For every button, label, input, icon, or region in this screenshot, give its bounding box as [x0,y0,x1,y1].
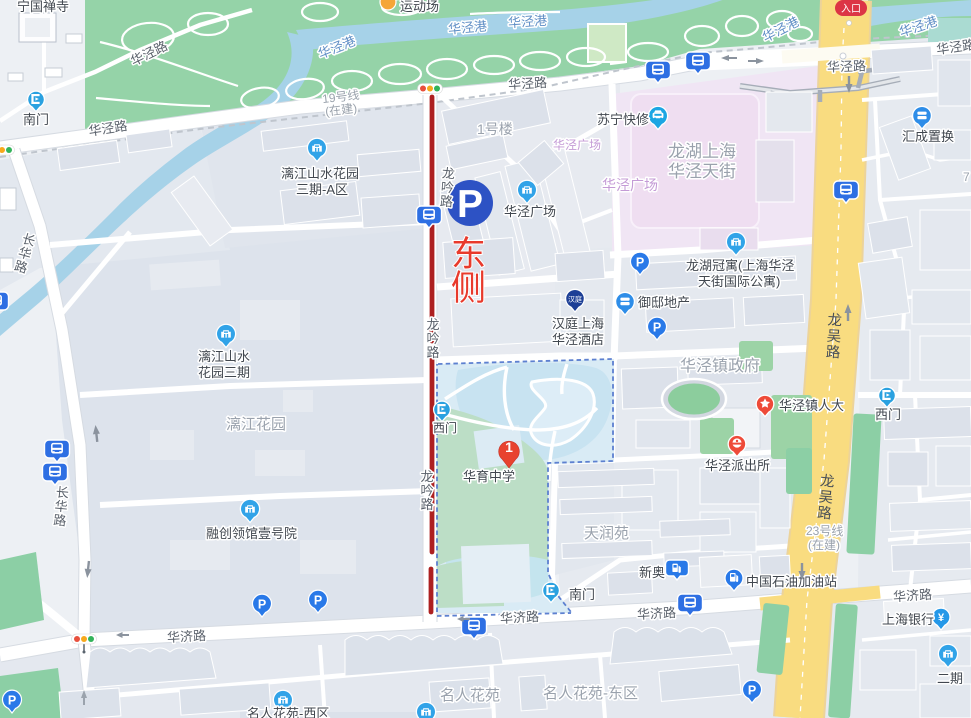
svg-text:融创领馆壹号院: 融创领馆壹号院 [206,526,297,541]
svg-text:名人花苑: 名人花苑 [440,687,500,704]
svg-text:漓江花园: 漓江花园 [226,416,286,433]
svg-text:漓江山水花园: 漓江山水花园 [281,166,359,181]
svg-text:汇成置换: 汇成置换 [902,129,954,144]
svg-text:御邸地产: 御邸地产 [638,295,690,310]
svg-text:华泾派出所: 华泾派出所 [705,458,770,473]
svg-text:23号线: 23号线 [806,524,843,538]
svg-text:华泾广场: 华泾广场 [602,177,658,193]
svg-text:华济路: 华济路 [893,587,933,605]
svg-text:华泾镇政府: 华泾镇政府 [680,357,760,375]
svg-text:龙吟路: 龙吟路 [420,469,433,512]
svg-text:侧: 侧 [451,269,486,308]
svg-text:1号楼: 1号楼 [477,121,513,137]
svg-text:运动场: 运动场 [400,0,439,14]
svg-text:西门: 西门 [875,407,901,422]
svg-text:华泾天街: 华泾天街 [668,162,736,181]
svg-text:华泾广场: 华泾广场 [553,138,601,152]
svg-text:汉庭上海: 汉庭上海 [552,316,604,331]
svg-text:西门: 西门 [433,420,457,435]
svg-text:1: 1 [505,439,513,455]
svg-text:天润苑: 天润苑 [584,525,629,542]
svg-text:南门: 南门 [23,112,49,127]
svg-text:新奥: 新奥 [639,565,665,580]
svg-text:P: P [457,183,483,226]
svg-text:华济路: 华济路 [637,605,677,622]
svg-text:龙吟路: 龙吟路 [426,317,439,360]
svg-text:中国石油加油站: 中国石油加油站 [746,574,837,589]
svg-text:华泾广场: 华泾广场 [504,204,556,219]
svg-text:入口: 入口 [841,4,861,15]
svg-text:上海银行: 上海银行 [882,612,934,627]
svg-text:华济路: 华济路 [500,609,540,626]
svg-text:(在建): (在建) [808,538,840,552]
svg-text:宁国禅寺: 宁国禅寺 [17,0,69,14]
svg-text:名人花苑-东区: 名人花苑-东区 [543,685,638,702]
svg-text:名人花苑-西区: 名人花苑-西区 [247,706,329,718]
svg-text:天街国际公寓): 天街国际公寓) [698,274,780,289]
svg-text:华济路: 华济路 [167,628,207,645]
svg-text:花园三期: 花园三期 [198,365,250,380]
svg-text:龙湖上海: 龙湖上海 [668,142,736,161]
svg-text:华泾路: 华泾路 [827,58,867,74]
svg-text:7: 7 [963,170,970,184]
svg-text:龙湖冠寓(上海华泾: 龙湖冠寓(上海华泾 [686,258,794,273]
svg-text:华泾酒店: 华泾酒店 [552,332,604,347]
svg-text:华泾港: 华泾港 [508,13,548,31]
svg-text:南门: 南门 [569,587,595,602]
svg-text:华泾路: 华泾路 [508,75,548,92]
svg-text:二期: 二期 [937,671,963,686]
svg-text:苏宁快修: 苏宁快修 [597,112,649,127]
svg-text:三期-A区: 三期-A区 [296,182,348,197]
svg-text:漓江山水: 漓江山水 [198,349,250,364]
svg-text:华泾镇人大: 华泾镇人大 [779,398,844,413]
svg-text:华育中学: 华育中学 [463,469,515,484]
